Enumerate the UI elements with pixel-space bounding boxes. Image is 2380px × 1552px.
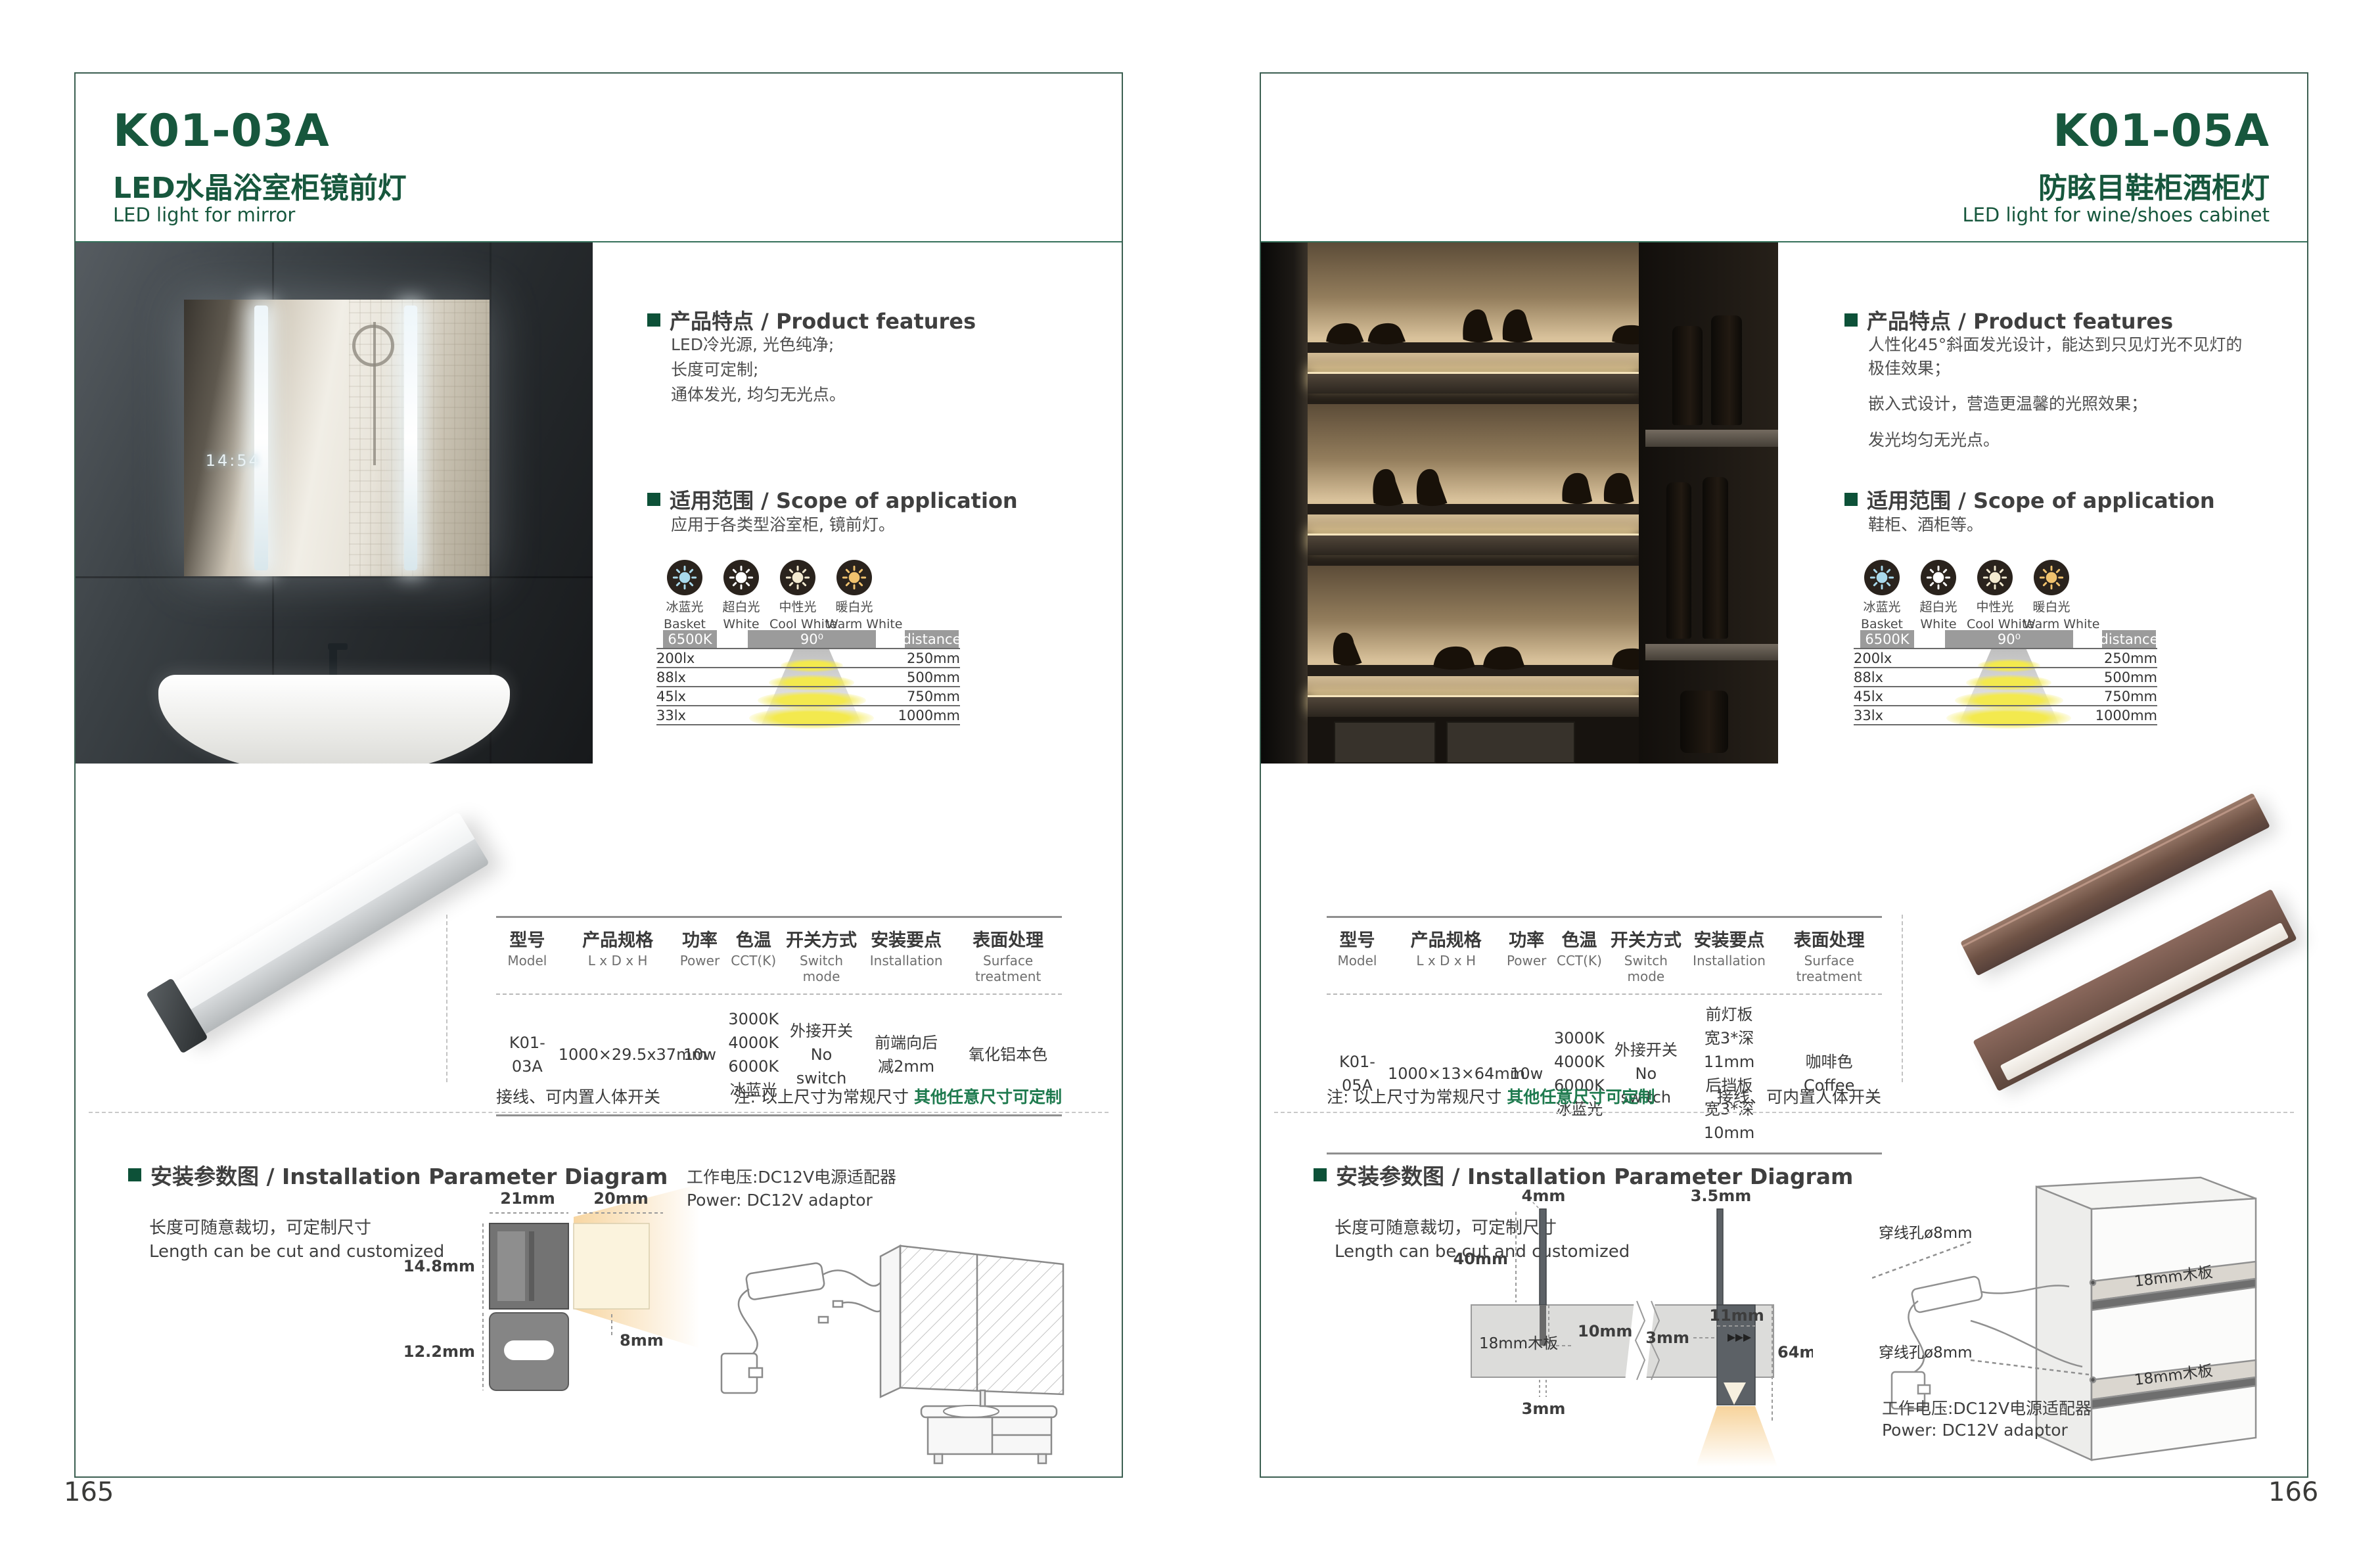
table-cell-size: 1000×13×64mm <box>1388 1062 1504 1085</box>
cct-icons-row: 冰蓝光 Basket 超白光 White <box>656 560 882 633</box>
sun-icon <box>667 560 702 595</box>
lux-value: 200lx <box>656 650 695 666</box>
cct-icons-row: 冰蓝光 Basket 超白光 White <box>1854 560 2080 633</box>
photometry-row: 45lx 750mm <box>656 686 960 705</box>
cct-icon-white: 超白光 White <box>1910 560 1967 633</box>
wash-basin <box>158 675 510 764</box>
cct-icon-ice-blue: 冰蓝光 Basket <box>656 560 713 633</box>
table-header-cell: 型号Model <box>1327 926 1388 984</box>
page-header: K01-03A LED水晶浴室柜镜前灯 LED light for mirror <box>76 74 1122 241</box>
feature-item: 人性化45°斜面发光设计，能达到只见灯光不见灯的极佳效果； <box>1868 333 2243 380</box>
scope-item: 应用于各类型浴室柜, 镜前灯。 <box>671 513 1065 537</box>
photometry-row: 45lx 750mm <box>1854 686 2157 705</box>
distance-badge: distance <box>905 630 959 648</box>
photo-bathroom-mirror: 14:54 <box>76 242 593 764</box>
power-note-en: Power: DC12V adaptor <box>687 1191 873 1210</box>
photometry-row: 200lx 250mm <box>656 648 960 667</box>
catalog-page-right: K01-05A 防眩目鞋柜酒柜灯 LED light for wine/shoe… <box>1260 72 2308 1478</box>
feature-item: LED冷光源, 光色纯净; <box>671 333 1065 357</box>
sun-icon <box>2034 560 2069 595</box>
table-cell-install: 前灯板 宽3*深11mm 后挡板 宽3*深10mm <box>1682 1003 1777 1145</box>
distance-value: 500mm <box>907 670 960 685</box>
shelf-surface <box>1308 353 1639 374</box>
dashed-divider <box>1902 915 1903 1082</box>
sun-icon <box>1921 560 1956 595</box>
bag <box>1680 691 1728 753</box>
table-header-cell: 开关方式Switch mode <box>1610 926 1682 984</box>
feature-item: 嵌入式设计，营造更温馨的光照效果； <box>1868 392 2262 416</box>
note-wiring: 接线、可内置人体开关 <box>1717 1084 1881 1108</box>
table-header-cell: 安装要点Installation <box>858 926 954 984</box>
page-number: 165 <box>64 1477 114 1507</box>
led-strip <box>254 306 268 571</box>
square-bullet-icon <box>1314 1168 1327 1181</box>
cct-icon-warm-white: 暖白光 Warm White <box>2023 560 2080 633</box>
square-bullet-icon <box>128 1168 141 1181</box>
shelf-surface <box>1308 676 1639 697</box>
table-header-cell: 型号Model <box>496 926 559 984</box>
storage-boxes <box>1308 717 1639 764</box>
profile-body <box>171 839 490 1047</box>
dimension-label: 10mm <box>1578 1322 1632 1340</box>
power-note-cn: 工作电压:DC12V电源适配器 <box>1882 1396 2092 1419</box>
distance-value: 250mm <box>2104 650 2157 666</box>
lux-value: 88lx <box>656 670 686 685</box>
feature-item: 长度可定制; <box>671 358 1065 382</box>
lit-shelf-column <box>1308 242 1639 764</box>
sun-icon <box>780 560 815 595</box>
photo-shoe-cabinet <box>1261 242 1778 764</box>
lux-value: 200lx <box>1854 650 1892 666</box>
dashed-rule <box>89 1112 1109 1113</box>
lux-value: 45lx <box>656 689 686 704</box>
shelf-board <box>1645 644 1778 660</box>
table-header-cell: 表面处理Surface treatment <box>1776 926 1882 984</box>
board-label: 18mm木板 <box>1479 1335 1558 1352</box>
square-bullet-icon <box>1844 493 1858 506</box>
spec-table: 型号Model 产品规格L x D x H 功率Power 色温CCT(K) 开… <box>1327 916 1882 1154</box>
product-title-en: LED light for wine/shoes cabinet <box>1962 204 2270 226</box>
dimension-label: 21mm <box>500 1189 555 1208</box>
note-custom-size: 注: 以上尺寸为常规尺寸 其他任意尺寸可定制 <box>1327 1084 1655 1108</box>
table-header-cell: 功率Power <box>677 926 723 984</box>
catalog-page-left: K01-03A LED水晶浴室柜镜前灯 LED light for mirror… <box>74 72 1123 1478</box>
table-cell-model: K01-03A <box>496 1031 559 1078</box>
lux-value: 33lx <box>656 708 686 723</box>
product-model: K01-03A <box>113 105 330 157</box>
dimension-label: 20mm <box>593 1189 648 1208</box>
photometry-row: 200lx 250mm <box>1854 648 2157 667</box>
table-cell-install: 前端向后 减2mm <box>858 1031 954 1078</box>
shoe-box <box>1446 721 1574 764</box>
lux-value: 45lx <box>1854 689 1883 704</box>
note-wiring: 接线、可内置人体开关 <box>496 1084 660 1108</box>
cabinet-door-edge <box>1261 242 1308 764</box>
tall-boot <box>1666 482 1691 639</box>
hole-label: 穿线孔ø8mm <box>1879 1344 1973 1361</box>
dimension-label: 3mm <box>1522 1400 1566 1418</box>
table-cell-switch: 外接开关 No switch <box>785 1019 858 1090</box>
shelf-unit <box>1308 566 1639 717</box>
shelf-front-light <box>1308 534 1639 555</box>
power-note-en: Power: DC12V adaptor <box>1882 1421 2068 1440</box>
hole-label: 穿线孔ø8mm <box>1879 1225 1973 1242</box>
table-cell-power: 10w <box>1504 1062 1549 1085</box>
photometry-chart: 6500K 90⁰ distance 200lx 250mm 88lx 500m… <box>1854 630 2157 726</box>
distance-badge: distance <box>2102 630 2156 648</box>
table-cell-size: 1000×29.5x37mm <box>559 1043 677 1066</box>
led-mirror: 14:54 <box>184 300 489 576</box>
features-heading: 产品特点 / Product features <box>1844 305 2173 335</box>
cct-badge: 6500K <box>663 630 717 648</box>
photometry-rows: 200lx 250mm 88lx 500mm 45lx 750mm 33lx 1… <box>1854 648 2157 725</box>
dimension-label: 11mm <box>1709 1306 1764 1325</box>
dimension-label: 64mm <box>1777 1343 1813 1361</box>
distance-value: 750mm <box>907 689 960 704</box>
feature-item: 发光均匀无光点。 <box>1868 428 2262 452</box>
table-header-row: 型号Model 产品规格L x D x H 功率Power 色温CCT(K) 开… <box>1327 916 1882 993</box>
square-bullet-icon <box>1844 313 1858 327</box>
sun-icon <box>723 560 759 595</box>
tile-seam <box>76 576 593 578</box>
cct-icon-cool-white: 中性光 Cool White <box>1967 560 2023 633</box>
feature-item: 通体发光, 均匀无光点。 <box>671 383 1065 407</box>
cross-section-diagram: 21mm 20mm 14.8mm 12.2mm 8mm <box>391 1184 700 1460</box>
square-bullet-icon <box>647 313 660 327</box>
info-column: 产品特点 / Product features 人性化45°斜面发光设计，能达到… <box>1844 242 2278 764</box>
table-header-cell: 开关方式Switch mode <box>785 926 858 984</box>
cct-icon-cool-white: 中性光 Cool White <box>769 560 826 633</box>
dashed-rule <box>1274 1112 2294 1113</box>
product-render-aluminum-profile <box>154 812 490 1047</box>
ankle-boot <box>1672 326 1703 425</box>
beam-angle-badge: 90⁰ <box>1945 630 2073 648</box>
tall-boot <box>1703 477 1728 639</box>
photometry-row: 33lx 1000mm <box>656 705 960 724</box>
faucet <box>329 643 337 677</box>
shower-bar <box>373 322 376 466</box>
table-cell-surface: 氧化铝本色 <box>954 1043 1062 1066</box>
shelf-front-light <box>1308 372 1639 394</box>
lux-value: 88lx <box>1854 670 1883 685</box>
shelf-unit <box>1308 404 1639 555</box>
photometry-row: 88lx 500mm <box>1854 667 2157 686</box>
dimension-label: 14.8mm <box>403 1257 475 1275</box>
photometry-row: 88lx 500mm <box>656 667 960 686</box>
table-header-cell: 产品规格L x D x H <box>559 926 677 984</box>
cct-icon-ice-blue: 冰蓝光 Basket <box>1854 560 1910 633</box>
info-column: 产品特点 / Product features LED冷光源, 光色纯净; 长度… <box>647 242 1081 764</box>
shelf-surface <box>1308 514 1639 536</box>
table-header-cell: 色温CCT(K) <box>722 926 785 984</box>
shelf-front-light <box>1308 695 1639 717</box>
ankle-boot <box>1711 315 1742 425</box>
features-heading: 产品特点 / Product features <box>647 305 976 335</box>
distance-value: 250mm <box>907 650 960 666</box>
cct-icon-warm-white: 暖白光 Warm White <box>826 560 882 633</box>
table-header-cell: 色温CCT(K) <box>1549 926 1610 984</box>
product-title-en: LED light for mirror <box>113 204 295 226</box>
sun-icon <box>836 560 872 595</box>
square-bullet-icon <box>647 493 660 506</box>
dimension-label: 8mm <box>620 1331 664 1350</box>
dimension-label: 4mm <box>1522 1187 1566 1205</box>
led-strip <box>404 306 418 571</box>
distance-value: 1000mm <box>898 708 960 723</box>
table-header-cell: 表面处理Surface treatment <box>954 926 1062 984</box>
table-header-cell: 功率Power <box>1504 926 1549 984</box>
scope-heading: 适用范围 / Scope of application <box>1844 484 2215 514</box>
cct-badge: 6500K <box>1860 630 1914 648</box>
shelf-board <box>1645 430 1778 446</box>
photometry-chart: 6500K 90⁰ distance 200lx 250mm 88lx 500m… <box>656 630 960 726</box>
installation-sketch <box>683 1218 1074 1465</box>
table-cell-power: 10w <box>677 1043 723 1066</box>
photometry-rows: 200lx 250mm 88lx 500mm 45lx 750mm 33lx 1… <box>656 648 960 725</box>
product-title-cn: LED水晶浴室柜镜前灯 <box>113 164 407 206</box>
distance-value: 500mm <box>2104 670 2157 685</box>
product-title-cn: 防眩目鞋柜酒柜灯 <box>2038 164 2270 206</box>
photometry-row: 33lx 1000mm <box>1854 705 2157 724</box>
shoe-box <box>1334 721 1436 764</box>
clock-readout: 14:54 <box>206 451 261 470</box>
page-header: K01-05A 防眩目鞋柜酒柜灯 LED light for wine/shoe… <box>1261 74 2307 241</box>
page-number: 166 <box>2268 1477 2318 1507</box>
distance-value: 1000mm <box>2095 708 2157 723</box>
dimension-label: 3mm <box>1645 1329 1689 1347</box>
scope-item: 鞋柜、酒柜等。 <box>1868 513 2262 537</box>
table-header-cell: 安装要点Installation <box>1682 926 1777 984</box>
sun-icon <box>1864 560 1900 595</box>
lux-value: 33lx <box>1854 708 1883 723</box>
distance-value: 750mm <box>2104 689 2157 704</box>
product-model: K01-05A <box>2053 105 2270 157</box>
table-data-row: K01-05A 1000×13×64mm 10w 3000K 4000K 600… <box>1327 993 1882 1154</box>
table-header-cell: 产品规格L x D x H <box>1388 926 1504 984</box>
boot-column <box>1639 242 1779 764</box>
dashed-divider <box>446 915 447 1082</box>
beam-angle-badge: 90⁰ <box>748 630 876 648</box>
dimension-label: 40mm <box>1453 1250 1508 1268</box>
power-note-cn: 工作电压:DC12V电源适配器 <box>687 1164 896 1188</box>
sun-icon <box>1977 560 2013 595</box>
cross-section-diagram: 4mm 3.5mm 40mm 18mm木板 10mm 3mm 11mm 3mm … <box>1445 1185 1813 1467</box>
cct-icon-white: 超白光 White <box>713 560 769 633</box>
profile-diffuser <box>154 812 475 1022</box>
note-custom-size: 注: 以上尺寸为常规尺寸 其他任意尺寸可定制 <box>734 1084 1062 1108</box>
shelf-unit <box>1308 242 1639 394</box>
cut-note-cn: 长度可随意裁切，可定制尺寸 <box>149 1214 371 1239</box>
table-header-row: 型号Model 产品规格L x D x H 功率Power 色温CCT(K) 开… <box>496 916 1062 993</box>
profile-diffuser <box>2000 923 2289 1081</box>
dimension-label: 12.2mm <box>403 1342 475 1361</box>
dimension-label: 3.5mm <box>1691 1187 1752 1205</box>
scope-heading: 适用范围 / Scope of application <box>647 484 1018 514</box>
